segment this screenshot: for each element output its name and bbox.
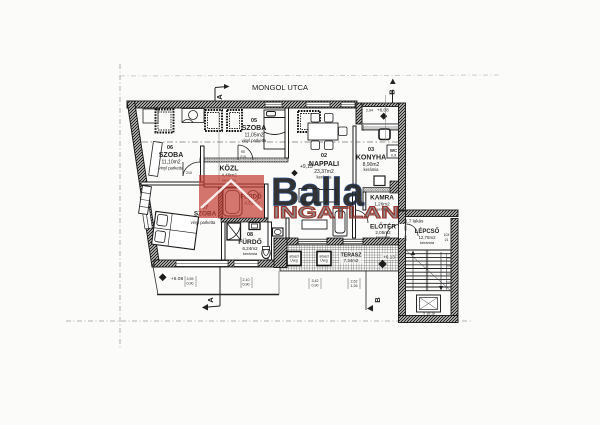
- svg-text:210: 210: [240, 155, 246, 159]
- svg-text:B: B: [387, 89, 396, 95]
- svg-text:7.34m2: 7.34m2: [344, 258, 359, 263]
- svg-text:kerámia: kerámia: [420, 240, 435, 245]
- svg-text:+6,08: +6,08: [377, 108, 389, 113]
- svg-text:08: 08: [247, 232, 253, 238]
- svg-text:vinyl parketta: vinyl parketta: [159, 166, 184, 171]
- svg-text:06: 06: [167, 145, 173, 151]
- svg-text:NAPPALI: NAPPALI: [309, 161, 339, 168]
- svg-text:+6.13: +6.13: [383, 255, 395, 260]
- svg-text:210: 210: [186, 171, 192, 175]
- svg-text:+9,15: +9,15: [300, 164, 313, 170]
- svg-text:FÜRDŐ: FÜRDŐ: [238, 237, 261, 246]
- svg-text:0,9: 0,9: [391, 153, 397, 158]
- svg-text:Üveg: Üveg: [290, 259, 298, 263]
- svg-text:+6.08: +6.08: [171, 276, 183, 282]
- svg-text:kerámia: kerámia: [243, 251, 258, 256]
- svg-text:SZOBA: SZOBA: [242, 125, 267, 132]
- svg-text:kerámia: kerámia: [364, 167, 380, 172]
- svg-text:1.7 lakás: 1.7 lakás: [405, 219, 424, 224]
- svg-text:SZOBA: SZOBA: [159, 152, 184, 159]
- svg-text:X 16-18: X 16-18: [423, 312, 435, 316]
- svg-text:1,26: 1,26: [351, 284, 358, 288]
- svg-text:vinyl parketta: vinyl parketta: [242, 138, 267, 143]
- svg-text:3,59: 3,59: [187, 277, 194, 281]
- svg-text:103: 103: [444, 233, 450, 237]
- svg-text:03: 03: [368, 147, 374, 153]
- svg-text:kerámia: kerámia: [376, 235, 391, 240]
- svg-text:MONGOL UTCA: MONGOL UTCA: [252, 83, 309, 92]
- svg-text:02: 02: [321, 153, 327, 159]
- svg-text:0,90: 0,90: [187, 282, 194, 286]
- svg-text:KÖZL: KÖZL: [219, 164, 239, 173]
- svg-text:190: 190: [404, 235, 408, 241]
- svg-text:LÉPCSŐ: LÉPCSŐ: [415, 227, 440, 235]
- svg-text:KAMRA: KAMRA: [370, 195, 394, 202]
- svg-text:180: 180: [404, 225, 408, 231]
- svg-text:0,90: 0,90: [243, 283, 250, 287]
- svg-text:3,42: 3,42: [312, 279, 319, 283]
- svg-text:2,94: 2,94: [366, 109, 373, 113]
- svg-text:Üveg: Üveg: [320, 259, 328, 263]
- svg-text:INGATLAN: INGATLAN: [273, 203, 399, 222]
- svg-text:05: 05: [251, 118, 257, 124]
- svg-text:90: 90: [241, 150, 245, 154]
- svg-text:A: A: [206, 297, 215, 303]
- svg-text:2,62: 2,62: [351, 280, 358, 284]
- svg-text:KONYHA: KONYHA: [356, 155, 386, 162]
- svg-text:A: A: [215, 94, 224, 100]
- svg-text:vinyl parketta: vinyl parketta: [191, 220, 216, 225]
- svg-text:B: B: [373, 297, 382, 303]
- svg-text:0,90: 0,90: [312, 284, 319, 288]
- svg-text:21: 21: [445, 238, 449, 242]
- svg-text:204: 204: [361, 125, 365, 131]
- svg-text:2,10: 2,10: [243, 278, 250, 282]
